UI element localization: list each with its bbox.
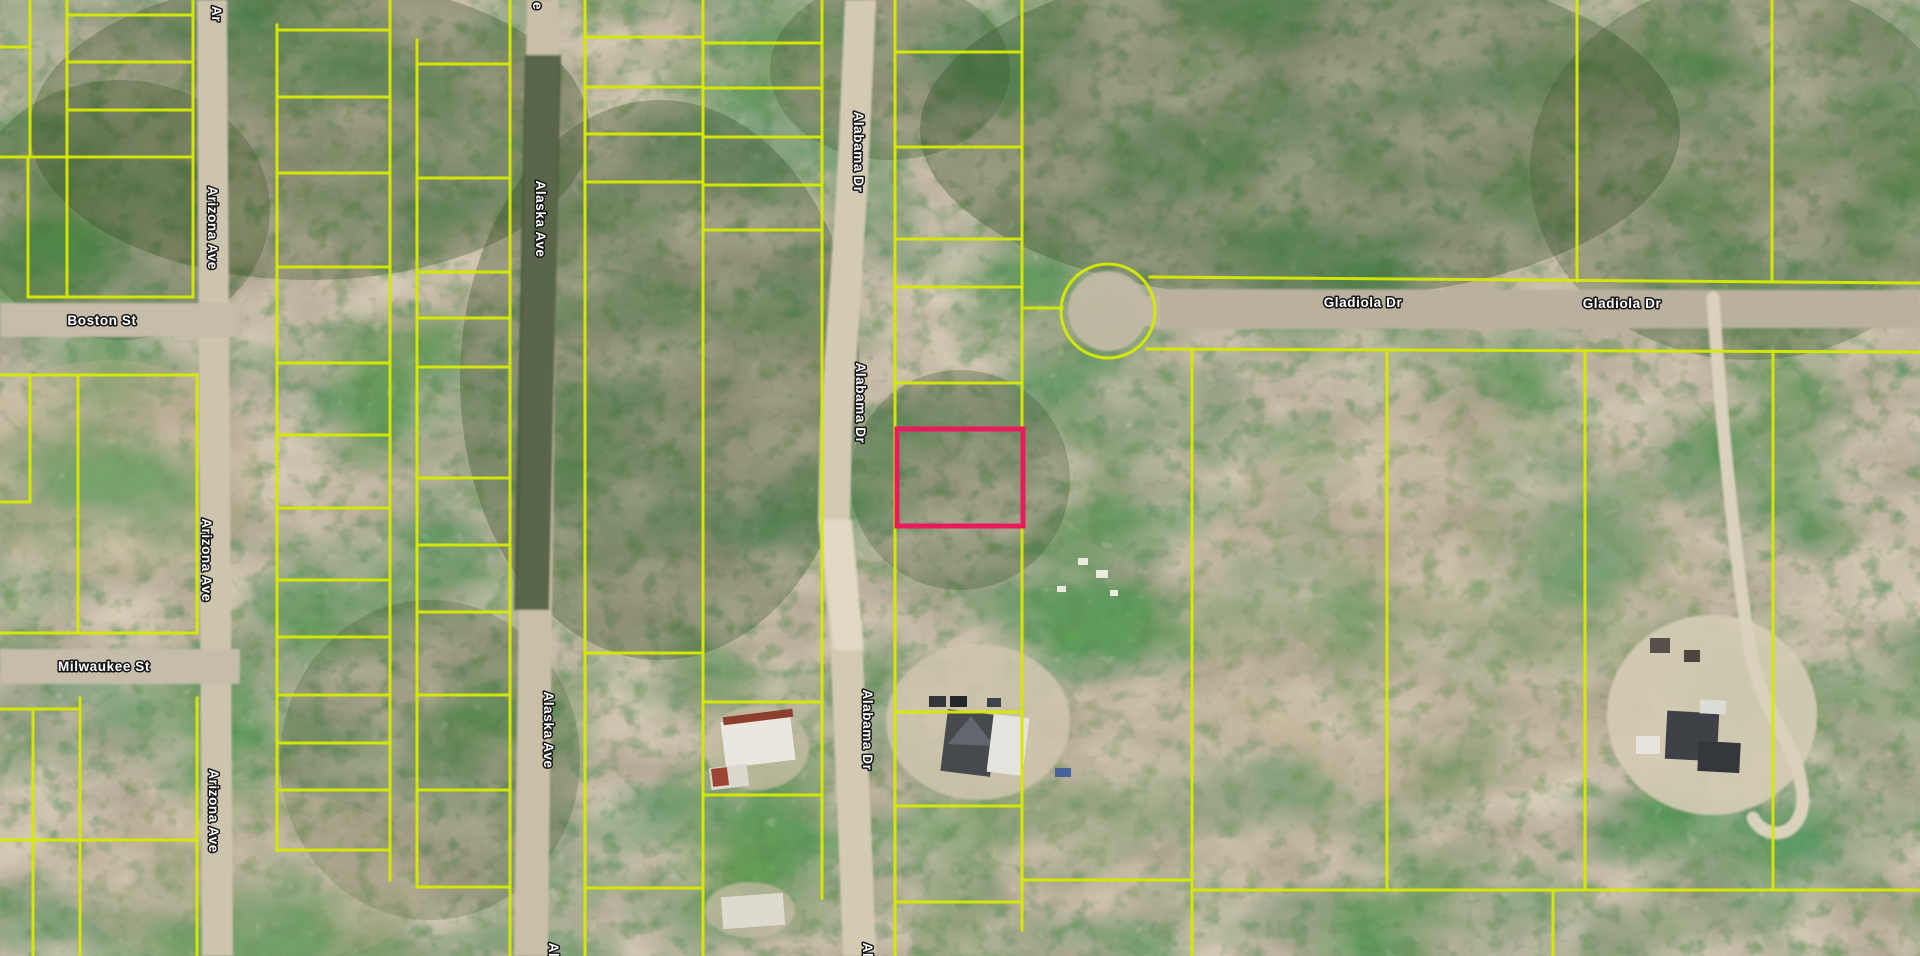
house-right-roof-light [1700, 699, 1727, 714]
street-label: Al [860, 943, 875, 956]
street-label: Al [546, 943, 561, 956]
car-3 [987, 698, 1001, 707]
street-label: Gladiola Dr [1583, 296, 1662, 311]
street-label: Alabama Dr [851, 111, 866, 192]
culdesac-pavement [1068, 271, 1148, 351]
map-viewport[interactable]: ArArizona AveBoston StArizona AveMilwauk… [0, 0, 1920, 956]
house-right-wing [1697, 741, 1741, 773]
debris-3 [1057, 586, 1066, 592]
shed-dark-2 [1684, 650, 1700, 662]
street-label: Alabama Dr [853, 362, 868, 443]
aerial-parcel-map[interactable]: ArArizona AveBoston StArizona AveMilwauk… [0, 0, 1920, 956]
street-label: Alaska Ave [541, 691, 556, 768]
car-1 [929, 696, 946, 707]
gladiola-dr-road [1150, 289, 1920, 329]
street-label: Arizona Ave [205, 186, 220, 270]
street-label: Arizona Ave [206, 769, 221, 853]
debris-2 [1096, 570, 1108, 578]
street-label: Alaska Ave [533, 180, 548, 257]
street-label: e [530, 2, 545, 10]
trailer-shed-roof [711, 767, 729, 787]
street-label: Milwaukee St [58, 659, 150, 674]
shed-dark-1 [1650, 638, 1670, 653]
car-2 [950, 696, 967, 707]
shed-white [1636, 736, 1660, 754]
structure-b-roof [721, 893, 785, 929]
street-label: Ar [209, 6, 224, 22]
street-label: Boston St [67, 313, 136, 328]
terrain-patch [850, 370, 1070, 590]
gladiola-neck [1140, 296, 1160, 326]
debris-4 [1110, 590, 1118, 596]
street-label: Alabama Dr [860, 689, 875, 770]
street-label: Arizona Ave [199, 518, 214, 602]
debris-1 [1078, 558, 1088, 565]
car-blue [1055, 768, 1071, 777]
street-label: Gladiola Dr [1324, 295, 1403, 310]
